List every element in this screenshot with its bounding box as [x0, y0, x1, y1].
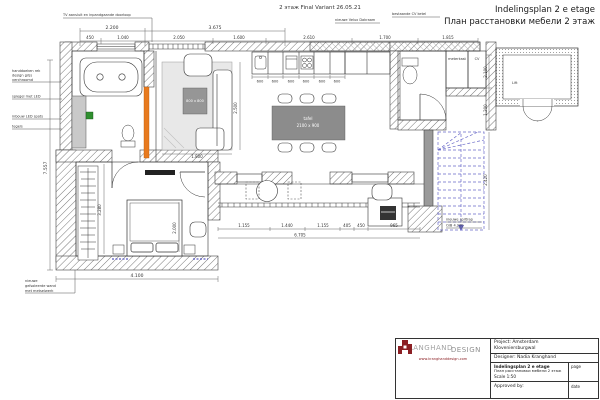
note-tv: TV aansluit en inpandgaande doorloop	[62, 13, 132, 17]
dim-label: 2.000	[172, 222, 177, 234]
dining-chair	[300, 94, 314, 103]
oven-icon	[286, 56, 297, 69]
brand-name: KRANGHANDDESIGN	[403, 344, 483, 352]
printer	[380, 206, 396, 220]
doc-titles: Indelingsplan 2 e etage План расстановки…	[491, 363, 569, 381]
dim-label: 450	[86, 35, 94, 40]
dim-label: 1.155	[317, 223, 329, 228]
dim-label: 2.610	[303, 35, 315, 40]
dim-label: 7.557	[43, 161, 49, 174]
note-mirror: spiegel met LED	[12, 95, 41, 99]
bathtub	[80, 58, 142, 96]
dim-label: 1.600	[233, 35, 245, 40]
dining-set: tafel 2100 x 900	[272, 94, 345, 152]
dim-label: 4.100	[131, 273, 144, 279]
dim-label: 1.155	[238, 223, 250, 228]
desk-chair	[372, 184, 392, 200]
dim-label: 1.700	[379, 35, 391, 40]
dim-label: 2.100	[483, 66, 488, 78]
logo-cell: KRANGHANDDESIGN www.kranghanddesign.com	[396, 339, 491, 398]
meterkast-label: meterkast	[448, 57, 466, 61]
note-velux: nieuwe Velux Dakraam	[335, 18, 376, 22]
designer-row: Designer: Nadia Kranghand	[491, 354, 598, 363]
toilet-door-arc	[420, 94, 446, 120]
dim-label: 2.200	[106, 25, 119, 31]
dim-label: 600	[303, 80, 310, 84]
dining-chair	[278, 143, 292, 152]
date-cell: date	[569, 382, 598, 398]
dim-label: 965	[390, 223, 398, 228]
kranghand-logo-icon	[396, 339, 414, 355]
doc-title-row: Indelingsplan 2 e etage План расстановки…	[491, 363, 598, 382]
pillow	[156, 243, 178, 252]
kitchen-counter	[252, 52, 390, 74]
approved-label: Approved by:	[491, 382, 569, 398]
washbasin-cabinet	[72, 96, 86, 148]
title-block-rows: Project: Amsterdam Kloveniersburgwal Des…	[491, 339, 598, 398]
toilet-wc	[402, 58, 418, 84]
round-table-chair	[288, 182, 301, 199]
doc-scale: Scale 1:50	[494, 374, 565, 379]
tv-unit	[145, 170, 175, 175]
dim-label: 405	[343, 223, 351, 228]
dim-label: 1.040	[117, 35, 129, 40]
page-cell: page	[569, 363, 598, 381]
dim-label: 600	[334, 80, 341, 84]
lift-room: Lift	[496, 48, 578, 121]
wardrobe	[78, 166, 98, 260]
designer-name: Designer: Nadia Kranghand	[494, 355, 556, 360]
sliding-door-orange	[144, 87, 149, 158]
hob-icon	[301, 56, 313, 69]
dining-chair	[322, 94, 336, 103]
dining-chair	[300, 143, 314, 152]
sink-icon	[255, 56, 266, 69]
coffee-table: 800 x 800	[183, 88, 207, 114]
plant-marker	[86, 112, 93, 119]
pillow	[131, 243, 153, 252]
nightstand	[113, 245, 124, 254]
dim-label: 1.815	[442, 35, 454, 40]
bathroom-wc	[121, 125, 135, 147]
dim-label: 3.675	[209, 25, 222, 31]
project-line2: Kloveniersburgwal	[494, 346, 595, 352]
note-towel-2: design grijs	[12, 74, 32, 78]
dim-label: 2.050	[173, 35, 185, 40]
note-wall-3: met metselwerk	[25, 289, 54, 293]
note-wall-1: nieuwe	[25, 279, 38, 283]
note-stair-2: O/B 4.200	[446, 224, 463, 228]
dining-table-label2: 2100 x 900	[297, 123, 320, 128]
dim-label: 3.280	[97, 204, 102, 216]
title-block: KRANGHANDDESIGN www.kranghanddesign.com …	[395, 338, 599, 399]
note-tiles: tegels	[12, 125, 23, 129]
dim-label: 2.420	[483, 174, 488, 186]
drawing-sheet: Indelingsplan 2 e etage План расстановки…	[0, 0, 600, 400]
dim-label: 1.200	[483, 104, 488, 116]
note-wall-2: geïsoleerde wand	[25, 284, 56, 288]
dim-label: 600	[272, 80, 279, 84]
dim-label: 600	[319, 80, 326, 84]
lift-label: Lift	[512, 81, 518, 85]
approved-row: Approved by: date	[491, 382, 598, 398]
nightstand	[184, 245, 195, 254]
dining-chair	[278, 94, 292, 103]
bedroom-chair	[190, 222, 206, 237]
hall-door-arc	[180, 172, 205, 197]
lift-door-opening	[520, 99, 554, 106]
note-towel-1: handdoeken rek	[12, 69, 41, 73]
brand-website: www.kranghanddesign.com	[419, 357, 467, 361]
cv-label: CV	[475, 57, 480, 61]
dim-label: 450	[357, 223, 365, 228]
dining-chair	[322, 143, 336, 152]
dim-label: 600	[288, 80, 295, 84]
window-top-kitchen	[149, 44, 205, 49]
coffee-table-label: 800 x 800	[186, 99, 204, 103]
note-cv-ketel: bestaande CV ketel	[392, 12, 426, 16]
dim-label: 1.800	[191, 154, 203, 159]
stair-wall	[424, 130, 433, 206]
dim-label: 600	[257, 80, 264, 84]
dim-label: 1.440	[281, 223, 293, 228]
armchair	[184, 54, 212, 76]
dining-table-label1: tafel	[304, 116, 313, 121]
round-table	[257, 181, 278, 202]
window-top-bathroom	[97, 44, 135, 49]
stairs	[438, 132, 484, 230]
brand-sub: DESIGN	[451, 346, 481, 354]
dim-label: 2.500	[233, 102, 238, 114]
note-stair-1: nieuwe spiltrap	[446, 218, 474, 222]
dim-label: 6.705	[294, 233, 306, 238]
bedroom-door-arc	[112, 162, 138, 188]
note-led: inbouw LED spots	[12, 115, 43, 119]
note-towel-3: verchroomd	[12, 78, 33, 82]
project-row: Project: Amsterdam Kloveniersburgwal	[491, 339, 598, 354]
